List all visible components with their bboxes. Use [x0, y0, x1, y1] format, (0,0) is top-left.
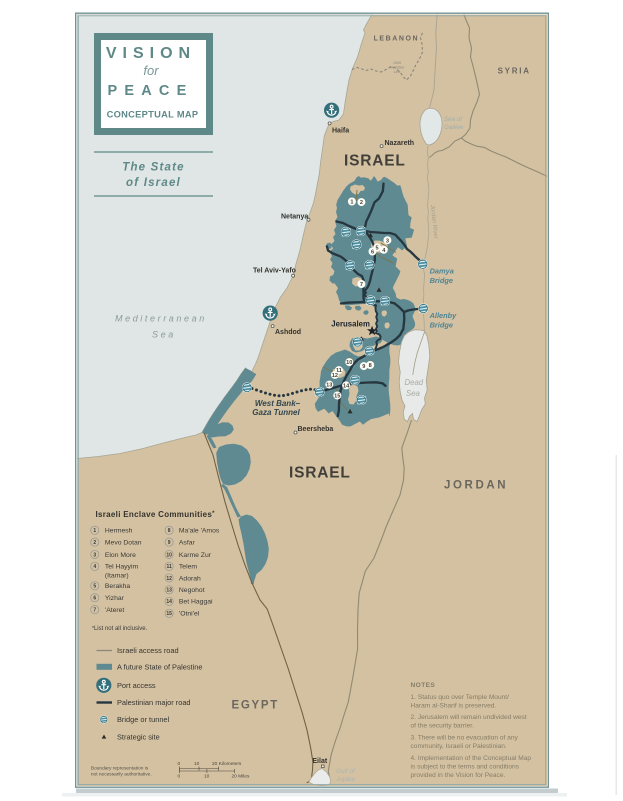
svg-text:ISRAEL: ISRAEL	[289, 465, 351, 482]
svg-text:Ashdod: Ashdod	[275, 329, 301, 336]
svg-text:The State: The State	[122, 162, 185, 174]
svg-text:Sea of: Sea of	[444, 116, 463, 123]
svg-text:2: 2	[360, 200, 363, 206]
svg-text:Allenby: Allenby	[429, 311, 458, 320]
svg-text:1. Status quo over Temple Moun: 1. Status quo over Temple Mount/	[411, 694, 510, 701]
svg-text:Netanya: Netanya	[281, 214, 308, 221]
svg-text:11: 11	[166, 564, 172, 570]
svg-text:Bridge: Bridge	[430, 276, 453, 285]
svg-text:Nazareth: Nazareth	[385, 140, 415, 147]
svg-text:'Ateret: 'Ateret	[105, 607, 125, 614]
svg-text:3: 3	[386, 238, 389, 244]
svg-text:Asfar: Asfar	[179, 540, 196, 547]
svg-text:Strategic site: Strategic site	[117, 733, 160, 742]
svg-text:10: 10	[194, 761, 200, 767]
svg-text:Mevo Dotan: Mevo Dotan	[105, 540, 142, 547]
svg-text:SYRIA: SYRIA	[498, 67, 531, 76]
svg-text:15: 15	[166, 611, 172, 617]
svg-text:Bridge: Bridge	[430, 321, 453, 330]
svg-text:ISRAEL: ISRAEL	[344, 153, 406, 170]
svg-text:Adorah: Adorah	[179, 575, 201, 582]
svg-text:12: 12	[166, 576, 172, 582]
svg-text:Galilee: Galilee	[444, 124, 464, 131]
svg-text:Tel Hayyim: Tel Hayyim	[105, 564, 139, 571]
svg-text:3. There will be no evacuation: 3. There will be no evacuation of any	[411, 735, 519, 742]
svg-text:15: 15	[334, 394, 340, 400]
svg-text:13: 13	[166, 588, 172, 594]
svg-text:'Otni'el: 'Otni'el	[179, 611, 200, 618]
svg-text:12: 12	[332, 373, 338, 379]
svg-text:of Israel: of Israel	[126, 177, 181, 189]
svg-text:Berakha: Berakha	[105, 583, 131, 590]
svg-text:Aqaba: Aqaba	[336, 776, 356, 783]
svg-text:Bridge or tunnel: Bridge or tunnel	[117, 715, 170, 724]
svg-text:Sea: Sea	[406, 389, 421, 398]
svg-text:10: 10	[166, 552, 172, 558]
svg-text:for: for	[143, 63, 159, 78]
svg-text:Palestinian major road: Palestinian major road	[117, 698, 191, 707]
svg-text:20 Kilometers: 20 Kilometers	[212, 761, 242, 767]
svg-text:4. Implementation of the Conce: 4. Implementation of the Conceptual Map	[411, 755, 532, 762]
svg-text:Karme Zur: Karme Zur	[179, 552, 212, 559]
svg-text:6: 6	[93, 596, 96, 602]
svg-text:20 Miles: 20 Miles	[232, 774, 250, 780]
svg-text:PEACE: PEACE	[108, 83, 194, 99]
svg-text:Negohot: Negohot	[179, 587, 205, 594]
svg-text:2. Jerusalem will remain undiv: 2. Jerusalem will remain undivided west	[411, 714, 527, 721]
svg-text:Bet Haggai: Bet Haggai	[179, 599, 213, 606]
svg-text:Gaza Tunnel: Gaza Tunnel	[252, 408, 300, 417]
svg-text:is subject to the terms and co: is subject to the terms and conditions	[411, 764, 520, 771]
svg-text:(Itamar): (Itamar)	[105, 573, 129, 580]
svg-text:of the security barrier.: of the security barrier.	[411, 723, 475, 730]
svg-text:not necessarily authoritative.: not necessarily authoritative.	[91, 772, 152, 778]
svg-text:0: 0	[178, 761, 181, 767]
svg-text:1: 1	[93, 528, 96, 534]
svg-text:8: 8	[168, 528, 171, 534]
svg-text:7: 7	[360, 282, 363, 288]
svg-text:NOTES: NOTES	[411, 682, 436, 689]
svg-text:Damya: Damya	[430, 267, 454, 276]
svg-text:Telem: Telem	[179, 564, 197, 571]
svg-text:community, Israeli or Palestin: community, Israeli or Palestinian.	[411, 743, 507, 750]
svg-text:Ma'ale 'Amos: Ma'ale 'Amos	[179, 528, 220, 535]
svg-text:Elon More: Elon More	[105, 552, 136, 559]
svg-text:Mediterranean: Mediterranean	[115, 314, 207, 324]
svg-text:LEBANON: LEBANON	[374, 36, 419, 43]
svg-text:Israeli Enclave Communities*: Israeli Enclave Communities*	[96, 510, 216, 519]
svg-text:EGYPT: EGYPT	[232, 700, 279, 712]
svg-text:10: 10	[346, 360, 352, 366]
svg-text:9: 9	[362, 364, 365, 370]
svg-text:A future State of Palestine: A future State of Palestine	[117, 663, 202, 672]
svg-text:Dead: Dead	[405, 378, 424, 387]
svg-text:Eilat: Eilat	[312, 758, 327, 765]
svg-text:Port access: Port access	[117, 681, 156, 690]
svg-text:1: 1	[350, 200, 353, 206]
svg-text:Beersheba: Beersheba	[298, 426, 334, 433]
svg-text:9: 9	[168, 540, 171, 546]
svg-text:14: 14	[343, 384, 350, 390]
svg-text:CONCEPTUAL MAP: CONCEPTUAL MAP	[107, 109, 199, 119]
svg-text:3: 3	[93, 552, 96, 558]
svg-text:Tel Aviv-Yafo: Tel Aviv-Yafo	[253, 268, 296, 275]
svg-text:VISION: VISION	[106, 45, 196, 62]
svg-text:West Bank–: West Bank–	[255, 399, 301, 408]
svg-text:10: 10	[204, 774, 210, 780]
svg-text:Yizhar: Yizhar	[105, 595, 125, 602]
svg-text:Jerusalem: Jerusalem	[331, 319, 370, 328]
svg-text:provided in the Vision for Pea: provided in the Vision for Peace.	[411, 772, 506, 779]
svg-text:Boundary representation is: Boundary representation is	[91, 766, 149, 772]
svg-text:Haifa: Haifa	[332, 128, 349, 135]
svg-text:1949: 1949	[393, 61, 401, 65]
svg-text:13: 13	[326, 383, 332, 389]
svg-text:Sea: Sea	[152, 330, 176, 340]
svg-text:6: 6	[371, 250, 374, 256]
svg-text:Israeli access road: Israeli access road	[117, 646, 179, 655]
svg-text:8: 8	[369, 363, 372, 369]
svg-text:7: 7	[93, 608, 96, 614]
svg-text:2: 2	[93, 540, 96, 546]
svg-text:14: 14	[166, 599, 172, 605]
svg-text:Gulf of: Gulf of	[336, 768, 356, 775]
svg-text:Haram al-Sharif is preserved.: Haram al-Sharif is preserved.	[411, 703, 497, 710]
svg-text:Hermesh: Hermesh	[105, 528, 133, 535]
svg-text:Line: Line	[394, 70, 401, 74]
svg-text:0: 0	[178, 774, 181, 780]
svg-text:JORDAN: JORDAN	[444, 480, 508, 492]
svg-text:Armistice: Armistice	[390, 66, 405, 70]
svg-text:*List not all inclusive.: *List not all inclusive.	[92, 626, 148, 632]
svg-text:5: 5	[93, 584, 96, 590]
svg-text:4: 4	[93, 564, 96, 570]
